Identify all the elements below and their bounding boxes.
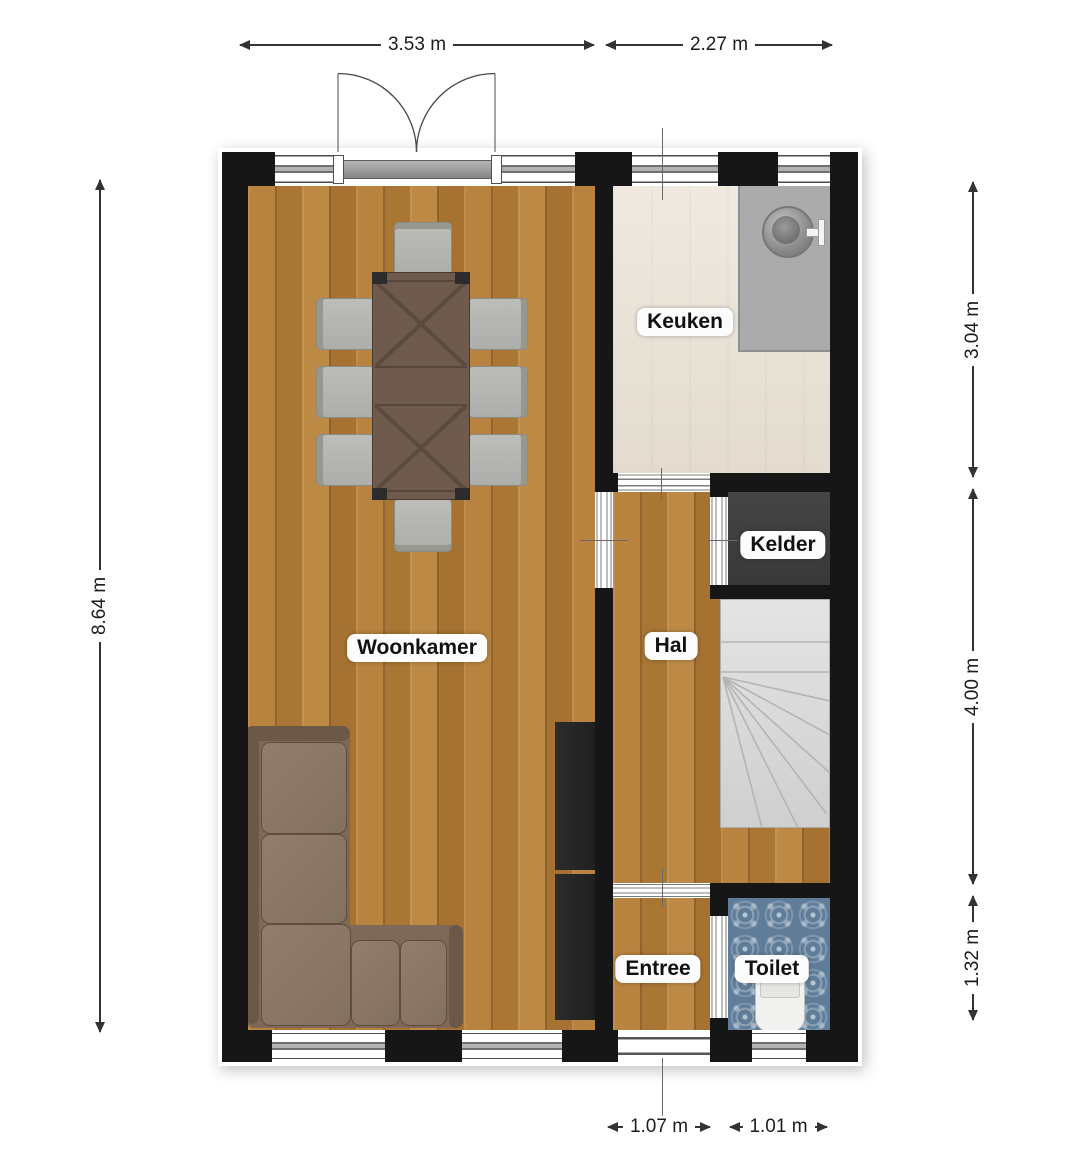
window-toilet xyxy=(752,1030,806,1062)
wall-bottom-corner-left xyxy=(222,1030,272,1062)
sofa-cushion xyxy=(261,834,347,924)
dimension-value: 1.07 m xyxy=(623,1116,695,1138)
tall-cabinet xyxy=(555,874,596,1020)
wall-top-mid xyxy=(575,152,632,186)
arrow-left-icon xyxy=(605,40,616,50)
wall-bottom-3 xyxy=(710,1030,752,1062)
wall-top-kitchen xyxy=(718,152,778,186)
window-keuken-1 xyxy=(632,152,718,186)
dining-table xyxy=(372,272,470,500)
arrow-down-icon xyxy=(95,1022,105,1033)
arrow-down-icon xyxy=(968,1010,978,1021)
dining-chair xyxy=(316,366,376,418)
wall-exterior-left xyxy=(222,152,248,1062)
arrow-left-icon xyxy=(729,1122,740,1132)
arrow-left-icon xyxy=(239,40,250,50)
arrow-right-icon xyxy=(584,40,595,50)
window-keuken-2 xyxy=(778,152,830,186)
window-top-1 xyxy=(275,152,333,186)
wall-bottom-corner-right xyxy=(806,1030,858,1062)
reference-line xyxy=(661,468,662,500)
dimension-value: 3.53 m xyxy=(381,34,453,56)
sink-basin xyxy=(772,216,800,244)
tall-cabinet xyxy=(555,722,596,870)
sofa-backrest-top xyxy=(245,726,350,741)
door-hinge-post xyxy=(333,155,344,184)
window-bottom-1 xyxy=(272,1030,385,1062)
room-label-toilet: Toilet xyxy=(735,955,809,983)
faucet-handle-icon xyxy=(818,219,825,246)
window-top-2 xyxy=(500,152,575,186)
room-label-entree: Entree xyxy=(615,955,700,983)
dining-chair xyxy=(394,222,452,276)
reference-line xyxy=(662,128,663,200)
wall-kelder-trap xyxy=(710,585,830,599)
front-door xyxy=(618,1030,710,1062)
french-door-threshold xyxy=(343,160,492,179)
staircase xyxy=(720,599,830,828)
dining-chair xyxy=(316,298,376,350)
floorplan-canvas: Woonkamer Keuken Kelder Hal Entree Toile… xyxy=(0,0,1080,1161)
dining-chair xyxy=(316,434,376,486)
dining-chair xyxy=(468,298,528,350)
reference-tick xyxy=(580,540,628,541)
sofa-cushion xyxy=(261,924,351,1026)
arrow-right-icon xyxy=(822,40,833,50)
sofa-cushion xyxy=(261,742,347,834)
sofa-cushion xyxy=(351,940,400,1026)
arrow-left-icon xyxy=(607,1122,618,1132)
reference-line xyxy=(662,868,663,906)
arrow-up-icon xyxy=(968,181,978,192)
reference-tick xyxy=(708,540,738,541)
door-kelder xyxy=(710,497,728,585)
dimension-value: 1.01 m xyxy=(742,1116,814,1138)
dining-chair xyxy=(394,498,452,552)
arrow-right-icon xyxy=(817,1122,828,1132)
dimension-value: 3.04 m xyxy=(962,293,984,365)
arrow-up-icon xyxy=(95,179,105,190)
dimension-value: 8.64 m xyxy=(89,570,111,642)
wall-exterior-right xyxy=(830,152,858,1062)
arrow-up-icon xyxy=(968,895,978,906)
sofa-armrest-right xyxy=(449,925,463,1028)
arrow-up-icon xyxy=(968,488,978,499)
window-bottom-2 xyxy=(462,1030,562,1062)
dimension-value: 4.00 m xyxy=(962,650,984,722)
dining-chair xyxy=(468,366,528,418)
arrow-down-icon xyxy=(968,874,978,885)
dimension-value: 2.27 m xyxy=(683,34,755,56)
corner-sofa xyxy=(245,726,463,1028)
dimension-value: 1.32 m xyxy=(962,922,984,994)
wall-bottom-2 xyxy=(562,1030,618,1062)
room-label-hal: Hal xyxy=(645,632,698,660)
wall-woonkamer-hal xyxy=(595,186,613,1030)
wall-top-corner-left xyxy=(222,152,275,186)
french-doors xyxy=(250,60,500,153)
arrow-down-icon xyxy=(968,467,978,478)
dining-chair xyxy=(468,434,528,486)
room-label-kelder: Kelder xyxy=(740,531,825,559)
door-hinge-post xyxy=(491,155,502,184)
door-keuken-hal xyxy=(618,473,710,492)
sofa-cushion xyxy=(400,940,447,1026)
wall-bottom-1 xyxy=(385,1030,462,1062)
arrow-right-icon xyxy=(700,1122,711,1132)
room-label-woonkamer: Woonkamer xyxy=(347,634,487,662)
room-label-keuken: Keuken xyxy=(637,308,733,336)
door-toilet xyxy=(710,916,728,1018)
